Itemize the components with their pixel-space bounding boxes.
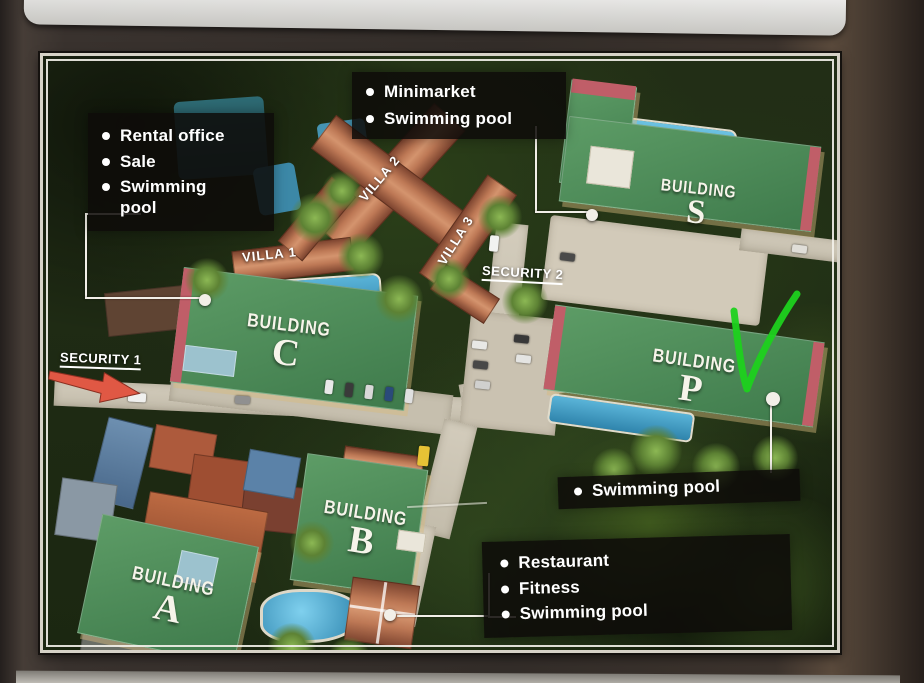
callout-item: Sale [120, 152, 156, 173]
callout-item: Swimming pool [384, 109, 512, 130]
callout-item: Restaurant [518, 551, 609, 574]
callout-item: Rental office [120, 126, 225, 147]
resort-map-photo: BUILDING S BUILDING C BUILDING P BUILDIN… [40, 53, 840, 653]
bullet-icon [501, 585, 509, 593]
callout-row: Minimarket [366, 82, 556, 103]
callout-rental-office: Rental office Sale Swimming pool [88, 113, 274, 231]
callout-item: Swimming pool [592, 477, 721, 502]
sign-frame: BUILDING S BUILDING C BUILDING P BUILDIN… [0, 0, 924, 683]
bullet-icon [366, 115, 374, 123]
bullet-icon [366, 88, 374, 96]
callout-row: Rental office [102, 126, 266, 147]
callout-row: Sale [102, 152, 266, 173]
callout-row: Swimming pool [501, 598, 781, 626]
callout-item: Swimming pool [120, 177, 212, 218]
callout-row: Fitness [501, 572, 781, 600]
callout-item: Fitness [519, 577, 580, 599]
bullet-icon [102, 132, 110, 140]
callout-row: Swimming pool [574, 474, 791, 502]
callout-row: Restaurant [500, 546, 780, 574]
bullet-icon [102, 183, 110, 191]
callout-minimarket: Minimarket Swimming pool [352, 72, 566, 139]
bullet-icon [102, 158, 110, 166]
bullet-icon [502, 611, 510, 619]
callout-row: Swimming pool [366, 109, 556, 130]
bullet-icon [574, 487, 582, 495]
callout-item: Swimming pool [519, 601, 648, 625]
callout-row: Swimming pool [102, 177, 266, 218]
lower-sign-panel [16, 671, 900, 683]
callout-item: Minimarket [384, 82, 476, 103]
upper-sign-panel [24, 0, 847, 36]
callout-restaurant: Restaurant Fitness Swimming pool [482, 534, 792, 638]
bullet-icon [500, 559, 508, 567]
